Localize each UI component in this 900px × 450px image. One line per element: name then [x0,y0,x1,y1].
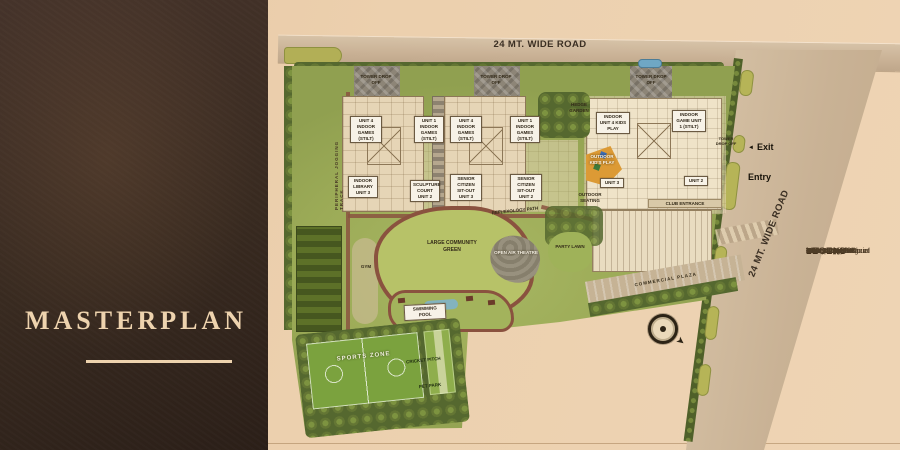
multipurpose-court [306,332,424,409]
page-bottom-rule [268,443,900,444]
top-road-label: 24 MT. WIDE ROAD [465,39,615,50]
masterplan-page: 24 MT. WIDE ROAD 24 MT. WIDE ROAD ◄ Exit… [0,0,900,450]
legend-label: Visitor's parking [806,246,859,255]
unit-label-box: UNIT 4 INDOOR GAMES (STILT) [350,116,382,143]
unit-label-box: UNIT 2 [684,176,708,186]
entry-label: Entry [748,172,771,182]
unit-label-box: INDOOR LIBRARY UNIT 3 [348,176,378,198]
outdoor-seating-label: OUTDOOR SEATING [572,192,608,204]
party-lawn-area [548,232,592,272]
unit-label-box: UNIT 3 [600,178,624,188]
hedge-garden-label: HEDGE GARDEN [562,102,596,114]
unit-label-box: SCULPTURE COURT UNIT 2 [410,180,440,202]
exit-label: Exit [757,142,774,152]
sports-zone-block: SPORTS ZONE CRICKET PITCH PET PARK [295,318,470,439]
page-title: MASTERPLAN [0,306,268,336]
unit-label-box: UNIT 1 INDOOR GAMES (STILT) [414,116,444,143]
cabana [488,300,495,306]
cabana [466,296,473,302]
dropoff-water-feature [638,59,662,68]
outdoor-kids-play-label: OUTDOOR KID'S PLAY [584,154,620,166]
unit-label-box: UNIT 1 INDOOR GAMES (STILT) [510,116,540,143]
unit-label-box: SENIOR CITIZEN SIT-OUT UNIT 2 [510,174,542,201]
tower-dropoff-label: TOWER DROP OFF [356,74,396,86]
jogging-track-label: PERIPHERAL JOGGING TRACK [334,130,344,210]
unit-label-box: SWIMMING POOL [404,303,447,321]
exit-arrow-icon: ◄ [748,145,754,151]
community-green-label: LARGE COMMUNITY GREEN [426,240,478,253]
club-entrance-label: CLUB ENTRANCE [666,201,705,207]
unit-label-box: SENIOR CITIZEN SIT-OUT UNIT 3 [450,174,482,201]
open-air-theatre-label: OPEN AIR THEATRE [494,250,538,256]
title-underline [86,360,232,363]
cabana [398,298,405,304]
tower-dropoff-label: TOWER DROP OFF [476,74,516,86]
hedge-garden-trees [538,92,590,138]
tower-dropoff-label: TOWER DROP OFF [631,74,671,86]
unit-label-box: UNIT 4 INDOOR GAMES (STILT) [450,116,482,143]
plantation-rows [296,226,342,332]
unit-label-box: INDOOR UNIT 4 KIDS PLAY [596,112,630,134]
tower-dropoff-label: TOWER DROP OFF [714,136,738,146]
compass-center [660,326,666,332]
unit-label-box: INDOOR GAME UNIT 1 (STILT) [672,110,706,132]
club-entrance-band: CLUB ENTRANCE [648,199,722,208]
gym-label: GYM [354,264,378,270]
brand-panel: MASTERPLAN [0,0,268,450]
party-lawn-label: PARTY LAWN [552,244,588,250]
tower-core [637,123,671,159]
